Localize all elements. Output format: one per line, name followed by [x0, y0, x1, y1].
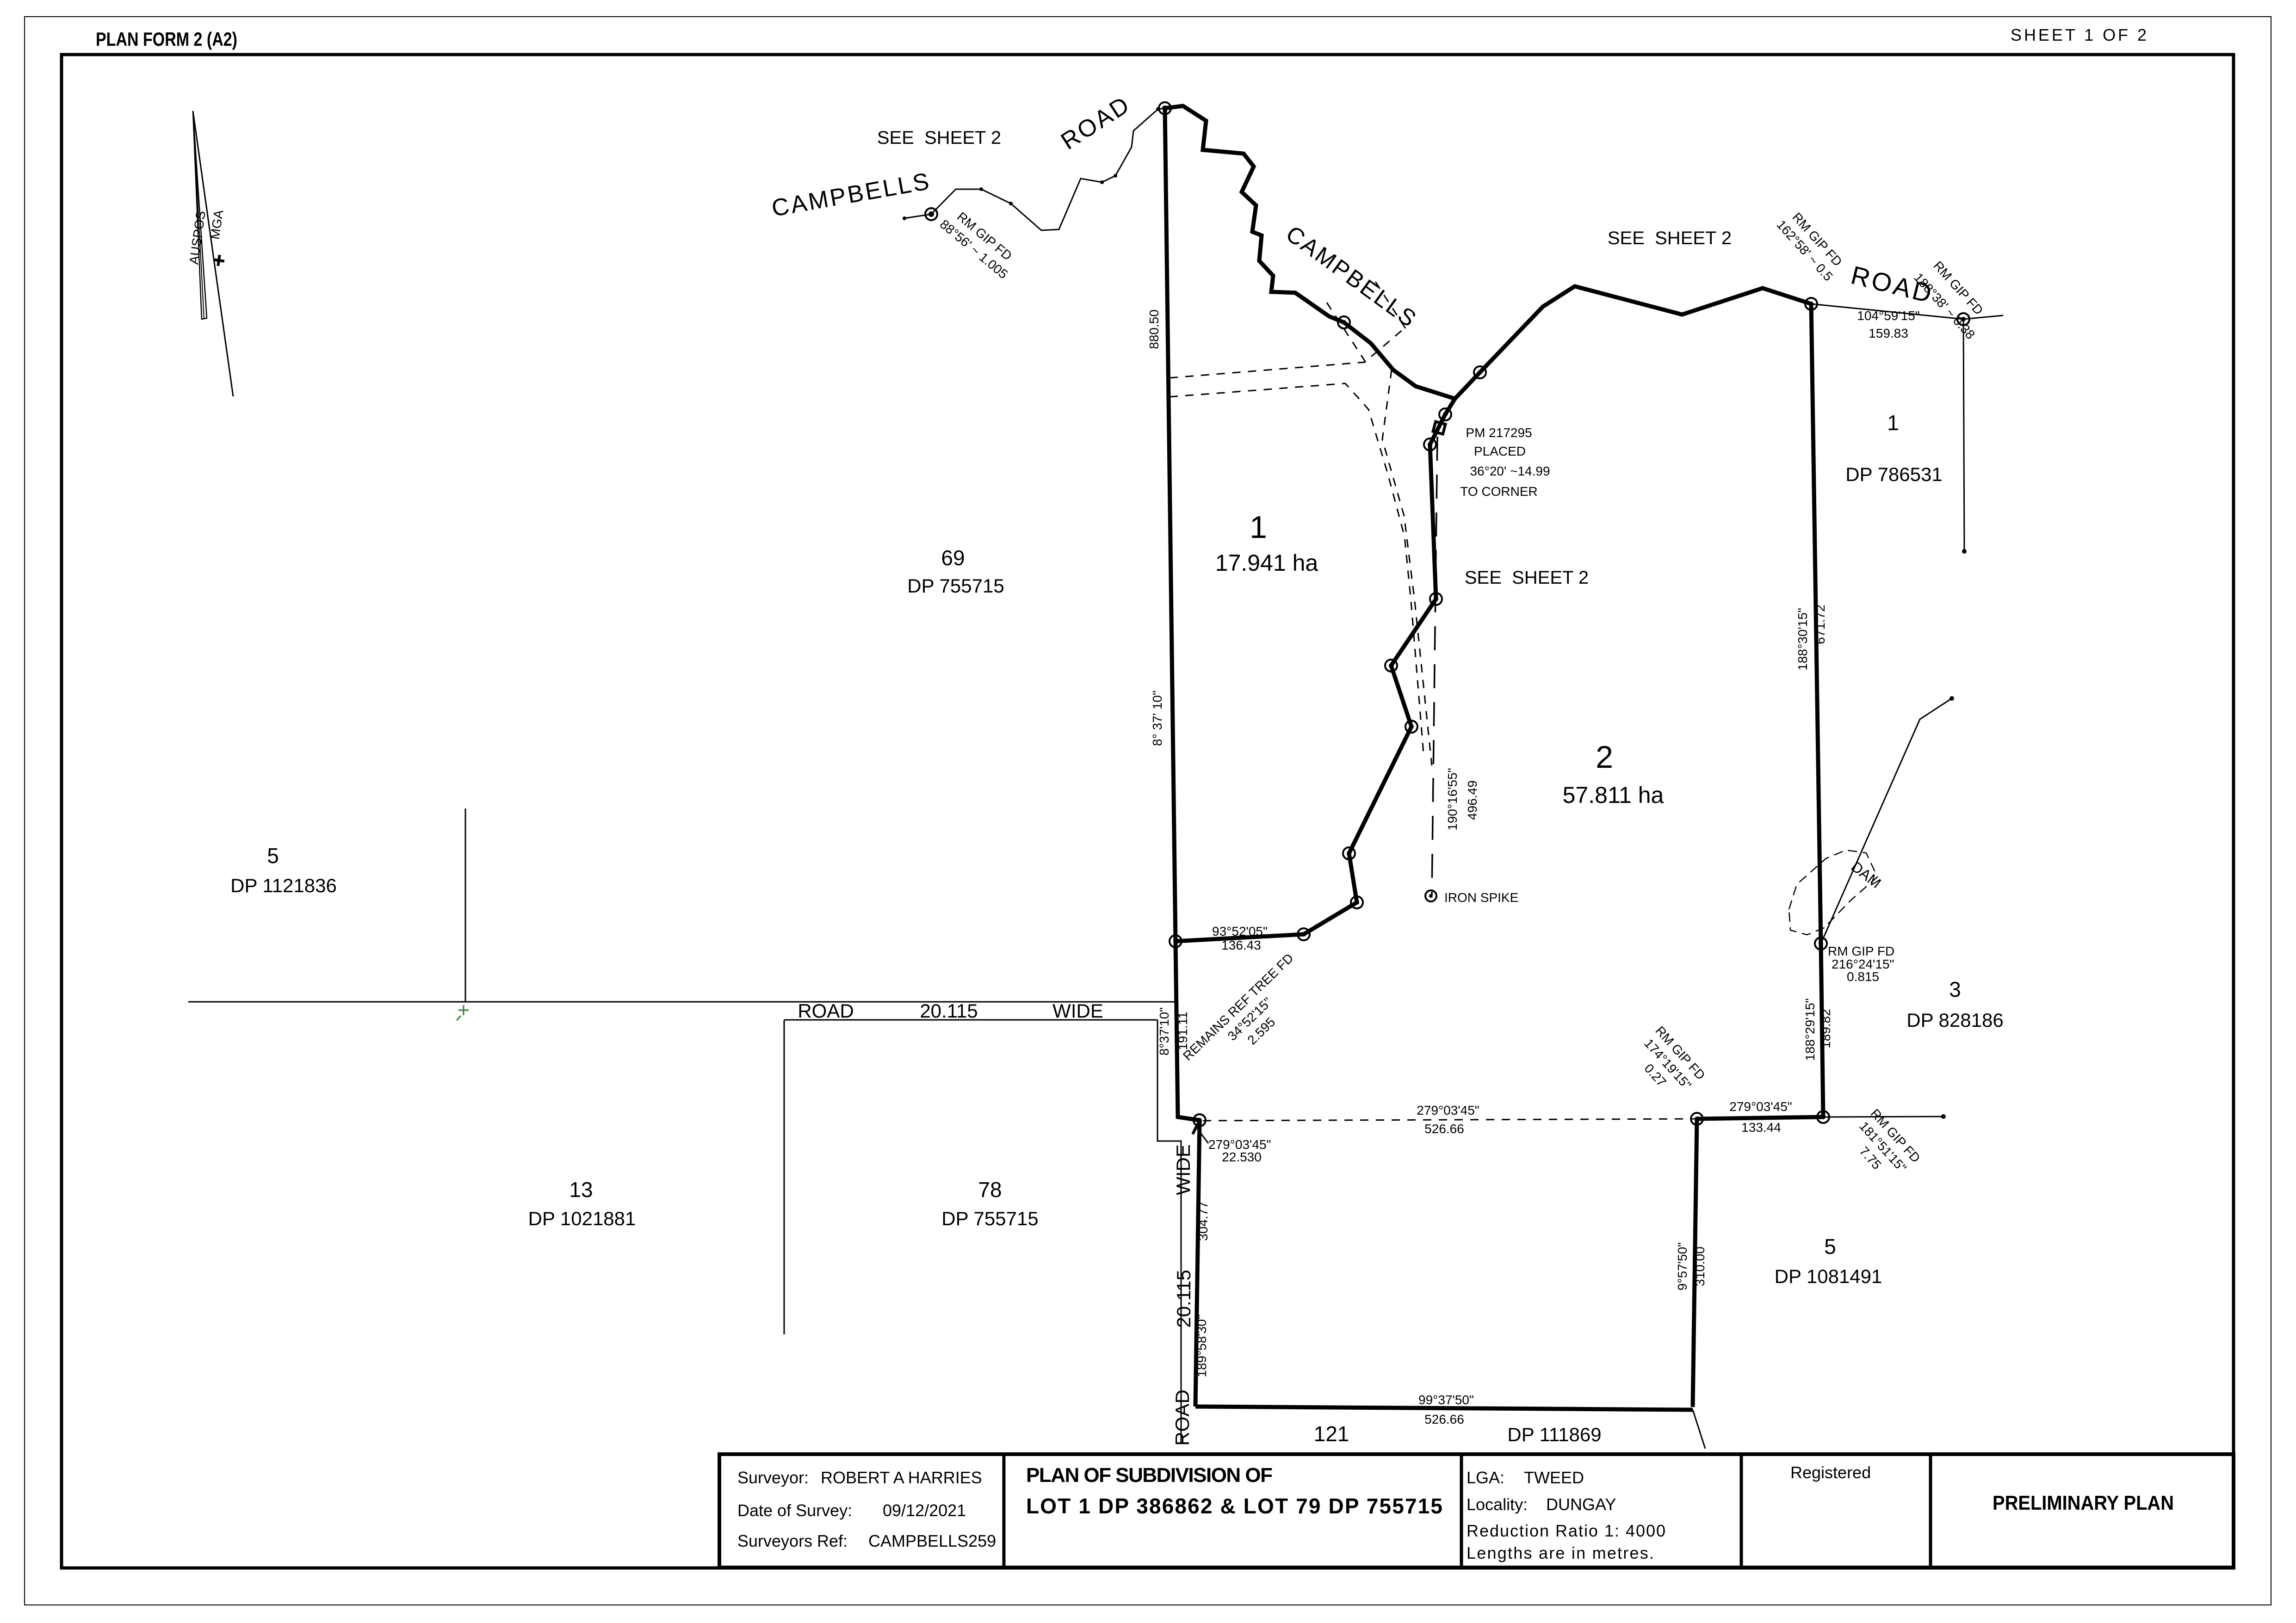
svg-text:8° 37' 10": 8° 37' 10"	[1150, 691, 1164, 746]
svg-text:DP 1081491: DP 1081491	[1775, 1265, 1882, 1287]
svg-text:880.50: 880.50	[1147, 309, 1161, 349]
svg-text:1: 1	[1887, 411, 1899, 435]
svg-text:526.66: 526.66	[1424, 1122, 1464, 1136]
svg-text:Surveyor:: Surveyor:	[737, 1468, 809, 1487]
svg-text:DP 111869: DP 111869	[1507, 1424, 1601, 1445]
svg-text:LGA:: LGA:	[1467, 1468, 1504, 1487]
svg-text:190°16'55": 190°16'55"	[1445, 768, 1460, 831]
svg-text:DP 1021881: DP 1021881	[528, 1208, 636, 1229]
svg-text:5: 5	[1824, 1234, 1836, 1259]
svg-text:Locality:: Locality:	[1467, 1495, 1528, 1514]
svg-text:MGA: MGA	[208, 209, 226, 241]
svg-text:526.66: 526.66	[1424, 1412, 1464, 1426]
svg-text:ROBERT A HARRIES: ROBERT A HARRIES	[821, 1468, 982, 1487]
svg-text:36°20' ~14.99: 36°20' ~14.99	[1470, 464, 1550, 478]
svg-text:Registered: Registered	[1790, 1463, 1871, 1482]
svg-text:PM 217295: PM 217295	[1466, 426, 1532, 440]
svg-text:0.815: 0.815	[1847, 969, 1879, 984]
svg-text:Lengths are in metres.: Lengths are in metres.	[1467, 1543, 1654, 1562]
svg-text:2: 2	[1596, 740, 1613, 775]
svg-text:DP 755715: DP 755715	[907, 575, 1004, 597]
svg-text:20.115: 20.115	[1173, 1270, 1194, 1327]
svg-text:PRELIMINARY PLAN: PRELIMINARY PLAN	[1993, 1492, 2174, 1514]
svg-text:CAMPBELLS259: CAMPBELLS259	[868, 1531, 996, 1550]
svg-text:PLACED: PLACED	[1474, 444, 1526, 458]
svg-text:279°03'45": 279°03'45"	[1417, 1103, 1479, 1117]
svg-text:REMAINS REF TREE FD: REMAINS REF TREE FD	[1180, 950, 1296, 1063]
svg-text:ROAD: ROAD	[1171, 1389, 1193, 1445]
svg-text:ROAD: ROAD	[798, 1000, 854, 1022]
svg-text:159.83: 159.83	[1869, 326, 1908, 340]
svg-text:DP 786531: DP 786531	[1845, 463, 1942, 485]
svg-text:DP 1121836: DP 1121836	[230, 875, 337, 896]
svg-text:133.44: 133.44	[1741, 1120, 1781, 1135]
svg-text:3: 3	[1949, 977, 1961, 1001]
svg-text:DP 755715: DP 755715	[941, 1208, 1038, 1229]
svg-text:PLAN FORM 2 (A2): PLAN FORM 2 (A2)	[96, 28, 237, 50]
svg-text:09/12/2021: 09/12/2021	[883, 1501, 966, 1520]
svg-text:SHEET 1 OF 2: SHEET 1 OF 2	[2011, 25, 2147, 44]
svg-text:496.49: 496.49	[1465, 780, 1479, 820]
svg-text:8°37'10": 8°37'10"	[1157, 1007, 1171, 1055]
svg-text:PLAN OF SUBDIVISION OF: PLAN OF SUBDIVISION OF	[1026, 1464, 1273, 1487]
svg-text:57.811 ha: 57.811 ha	[1563, 782, 1664, 808]
svg-text:SEE SHEET 2: SEE SHEET 2	[1465, 568, 1589, 588]
svg-text:Reduction Ratio 1: 4000: Reduction Ratio 1: 4000	[1467, 1521, 1665, 1540]
svg-text:WIDE: WIDE	[1052, 1000, 1103, 1022]
svg-text:121: 121	[1314, 1422, 1349, 1446]
svg-text:20.115: 20.115	[920, 1000, 978, 1022]
svg-text:22.530: 22.530	[1222, 1150, 1262, 1164]
svg-text:IRON SPIKE: IRON SPIKE	[1444, 890, 1518, 905]
svg-text:LOT 1 DP 386862 & LOT 79 DP 75: LOT 1 DP 386862 & LOT 79 DP 755715	[1026, 1494, 1442, 1518]
svg-text:CAMPBELLS: CAMPBELLS	[770, 167, 933, 222]
svg-text:DP 828186: DP 828186	[1906, 1009, 2003, 1031]
svg-text:ROAD: ROAD	[1056, 91, 1135, 155]
svg-text:1: 1	[1250, 510, 1267, 545]
svg-text:104°59'15": 104°59'15"	[1857, 309, 1920, 323]
svg-text:DUNGAY: DUNGAY	[1546, 1495, 1616, 1514]
svg-text:78: 78	[978, 1178, 1002, 1202]
svg-text:13: 13	[569, 1178, 593, 1202]
svg-text:CAMPBELLS: CAMPBELLS	[1281, 221, 1423, 333]
svg-text:188°29'15": 188°29'15"	[1803, 998, 1817, 1061]
svg-text:99°37'50": 99°37'50"	[1418, 1393, 1474, 1407]
svg-text:Date of Survey:: Date of Survey:	[737, 1501, 852, 1520]
svg-text:RM GIP FD: RM GIP FD	[1828, 944, 1894, 958]
svg-text:WIDE: WIDE	[1172, 1144, 1194, 1195]
svg-text:SEE SHEET 2: SEE SHEET 2	[877, 128, 1001, 148]
svg-text:17.941 ha: 17.941 ha	[1215, 550, 1318, 576]
svg-text:5: 5	[267, 844, 279, 868]
svg-text:TO CORNER: TO CORNER	[1460, 484, 1538, 499]
svg-text:69: 69	[941, 546, 965, 570]
svg-text:188°30'15": 188°30'15"	[1795, 608, 1810, 671]
svg-text:Surveyors Ref:: Surveyors Ref:	[737, 1531, 848, 1550]
svg-text:SEE SHEET 2: SEE SHEET 2	[1608, 228, 1732, 248]
svg-text:9°57'50": 9°57'50"	[1675, 1242, 1690, 1290]
svg-text:AUSPOS: AUSPOS	[186, 210, 208, 265]
svg-text:TWEED: TWEED	[1524, 1468, 1584, 1487]
svg-text:279°03'45": 279°03'45"	[1729, 1099, 1792, 1114]
